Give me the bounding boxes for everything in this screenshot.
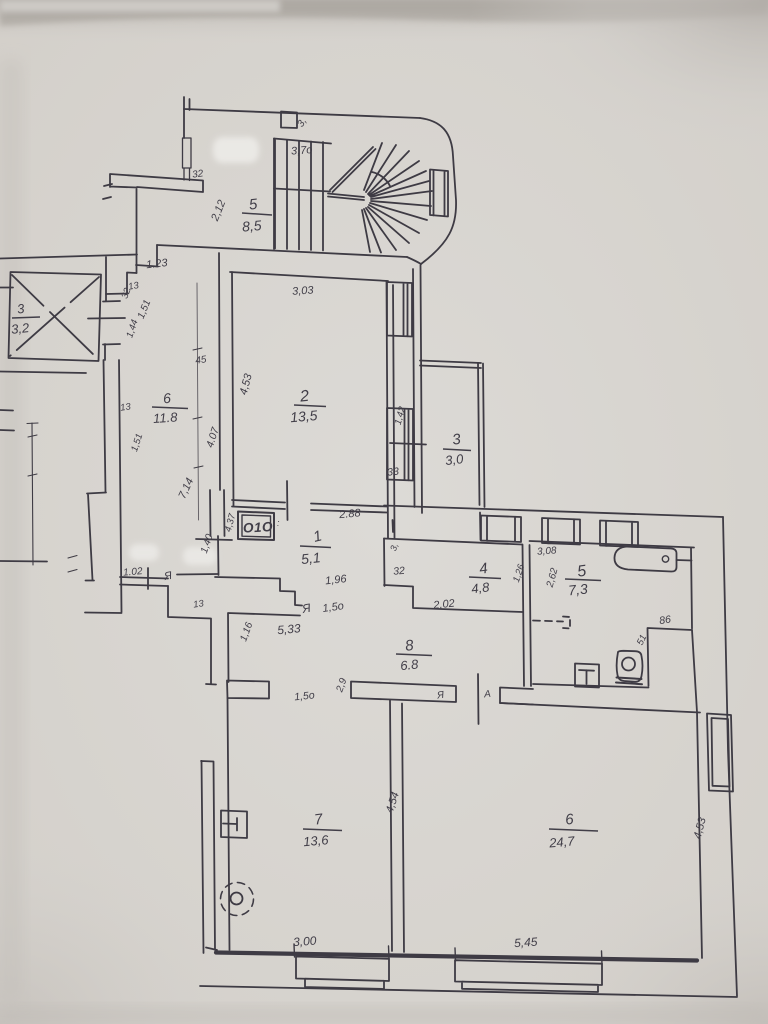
svg-text:2,02: 2,02 bbox=[432, 598, 456, 612]
svg-text:32: 32 bbox=[393, 565, 406, 578]
svg-text:5,1: 5,1 bbox=[300, 549, 321, 567]
svg-text:3,08: 3,08 bbox=[537, 545, 558, 557]
svg-text:45: 45 bbox=[195, 354, 208, 367]
svg-text:2: 2 bbox=[298, 388, 310, 406]
svg-text:4,8: 4,8 bbox=[470, 579, 491, 596]
svg-text:3,0: 3,0 bbox=[444, 451, 465, 468]
svg-text:2.88: 2.88 bbox=[338, 507, 362, 521]
svg-text:3,00: 3,00 bbox=[293, 934, 318, 950]
svg-text:32: 32 bbox=[192, 168, 205, 181]
svg-text:8,5: 8,5 bbox=[241, 217, 262, 235]
svg-text:13,5: 13,5 bbox=[289, 407, 318, 425]
svg-text:13,6: 13,6 bbox=[303, 832, 330, 849]
svg-text:А: А bbox=[483, 689, 492, 701]
svg-text:7,3: 7,3 bbox=[567, 580, 588, 598]
svg-text:3,2: 3,2 bbox=[10, 320, 30, 337]
svg-text:O1O: O1O bbox=[243, 519, 274, 536]
svg-text:11.8: 11.8 bbox=[153, 409, 179, 426]
svg-text:86: 86 bbox=[659, 614, 672, 628]
svg-text:5,45: 5,45 bbox=[514, 935, 539, 951]
svg-text:3,7o: 3,7o bbox=[291, 144, 313, 157]
svg-text:1.23: 1.23 bbox=[146, 257, 169, 271]
svg-text:3,03: 3,03 bbox=[292, 284, 315, 298]
svg-text:5,33: 5,33 bbox=[277, 621, 302, 637]
svg-text:1.02: 1.02 bbox=[123, 566, 144, 579]
svg-text:1,5o: 1,5o bbox=[294, 689, 316, 703]
svg-text:24,7: 24,7 bbox=[548, 833, 576, 850]
svg-text:33: 33 bbox=[387, 466, 400, 479]
svg-text:6: 6 bbox=[162, 390, 171, 407]
svg-text:6.8: 6.8 bbox=[399, 656, 419, 673]
svg-text:1,96: 1,96 bbox=[325, 573, 348, 587]
